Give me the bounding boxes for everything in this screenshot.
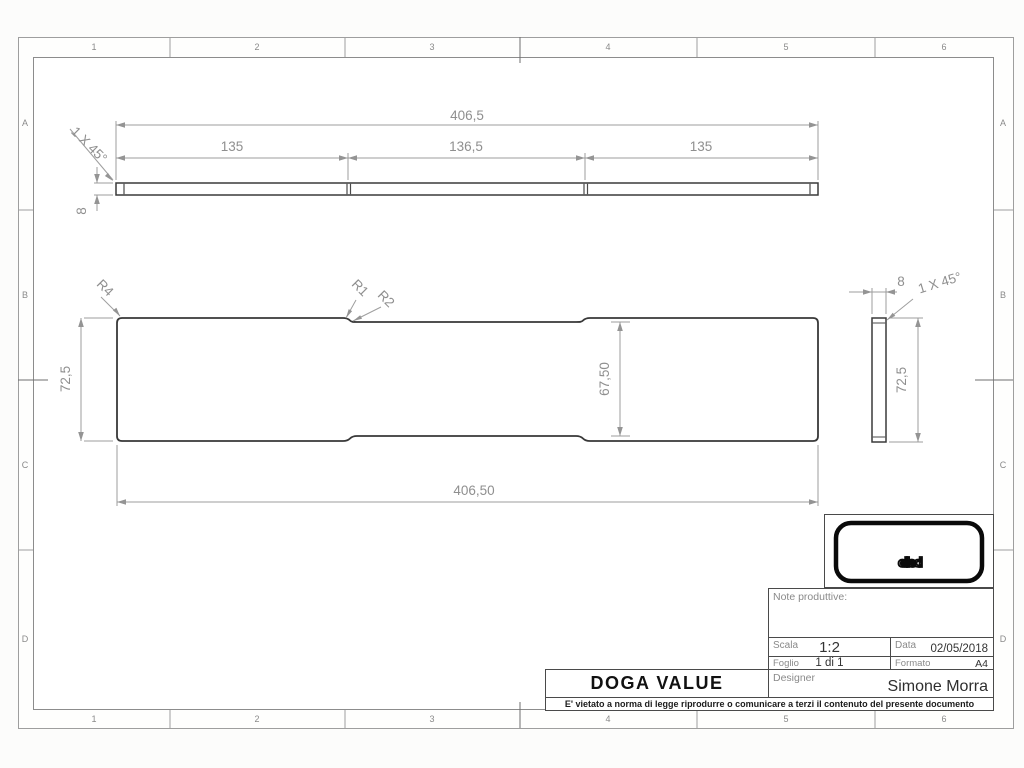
top-view-outline bbox=[116, 183, 818, 195]
drawing-sheet: 1 2 3 4 5 6 1 2 3 4 5 6 A B C D A B C D bbox=[0, 0, 1024, 768]
logo-text: elleci bbox=[898, 555, 923, 571]
date-box: Data 02/05/2018 bbox=[890, 637, 994, 657]
logo-box: elleci bbox=[824, 514, 994, 588]
designer-label: Designer bbox=[773, 672, 815, 684]
disclaimer-text: E' vietato a norma di legge riprodurre o… bbox=[546, 698, 993, 710]
dimension-lines bbox=[70, 121, 923, 506]
notes-label: Note produttive: bbox=[773, 591, 847, 603]
dim-radius-r2: R2 bbox=[375, 287, 398, 310]
dim-seg-left: 135 bbox=[221, 139, 244, 154]
scale-box: Scala 1:2 bbox=[768, 637, 891, 657]
elleci-logo: elleci bbox=[833, 520, 985, 584]
dim-height-side: 72,5 bbox=[894, 367, 909, 393]
dim-seg-right: 135 bbox=[690, 139, 713, 154]
dim-thickness-top: 8 bbox=[74, 207, 89, 215]
notes-box: Note produttive: bbox=[768, 588, 994, 638]
format-label: Formato bbox=[895, 658, 930, 669]
dim-height-front: 72,5 bbox=[58, 366, 73, 392]
disclaimer-box: E' vietato a norma di legge riprodurre o… bbox=[545, 697, 994, 711]
sheet-number-box: Foglio 1 di 1 bbox=[768, 656, 891, 670]
front-view-outline bbox=[117, 318, 818, 441]
dim-seg-mid: 136,5 bbox=[449, 139, 483, 154]
part-name: DOGA VALUE bbox=[546, 670, 768, 697]
scale-value: 1:2 bbox=[769, 639, 890, 656]
dim-total-top: 406,5 bbox=[450, 108, 484, 123]
date-label: Data bbox=[895, 640, 916, 651]
format-box: Formato A4 bbox=[890, 656, 994, 670]
dim-chamfer-side: 1 X 45° bbox=[916, 269, 963, 296]
side-view-outline bbox=[872, 318, 886, 442]
dimension-arrows bbox=[78, 122, 921, 505]
sheet-number-value: 1 di 1 bbox=[769, 657, 890, 669]
dim-chamfer-top: 1 X 45° bbox=[68, 124, 110, 166]
dim-radius-r1: R1 bbox=[349, 276, 372, 299]
date-value: 02/05/2018 bbox=[930, 643, 988, 655]
dim-total-front: 406,50 bbox=[453, 483, 494, 498]
dim-radius-r4: R4 bbox=[94, 276, 117, 299]
dim-inner-height-front: 67,50 bbox=[597, 362, 612, 396]
designer-value: Simone Morra bbox=[888, 678, 988, 696]
part-name-box: DOGA VALUE bbox=[545, 669, 769, 698]
designer-box: Designer Simone Morra bbox=[768, 669, 994, 698]
dim-width-side: 8 bbox=[897, 274, 905, 289]
